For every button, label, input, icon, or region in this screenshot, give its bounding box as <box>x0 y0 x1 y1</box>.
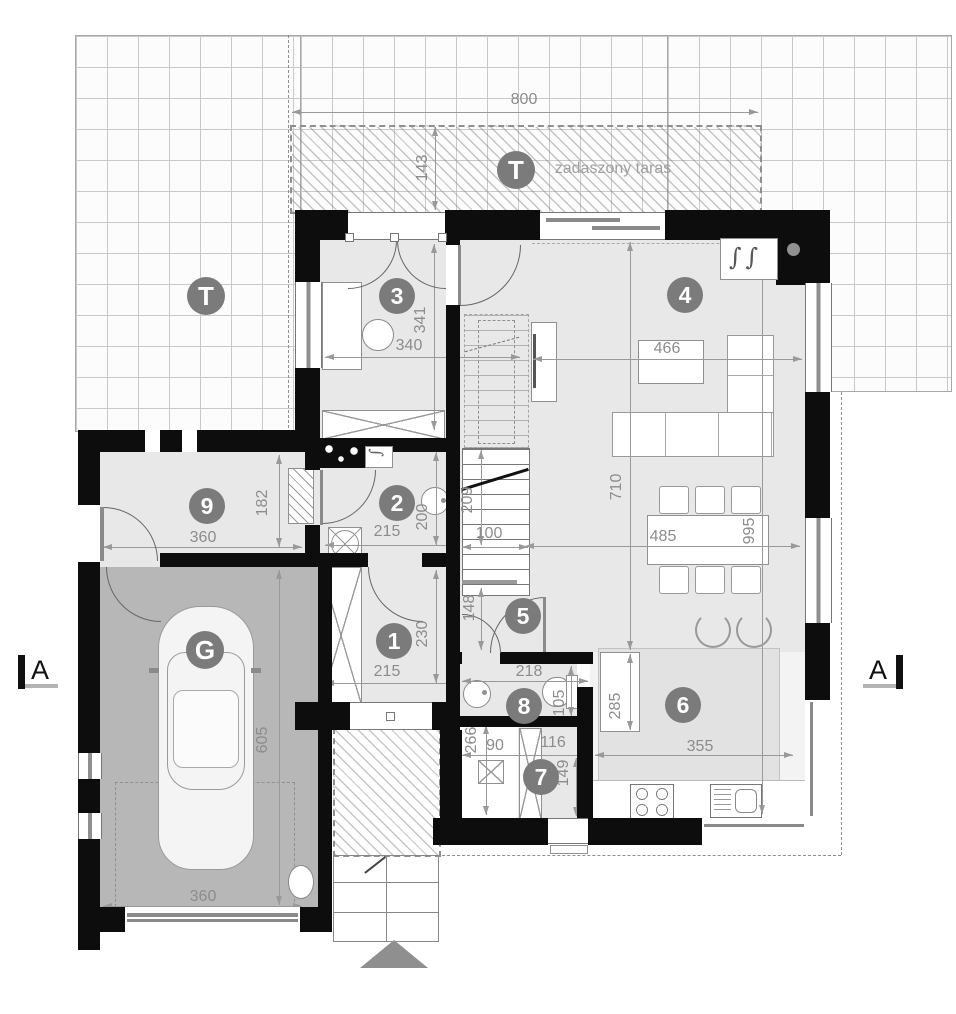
dining-chair <box>695 486 725 514</box>
dim-215-room2: 215 <box>374 523 401 541</box>
dim-209: 209 <box>459 487 477 514</box>
dim-line-710 <box>630 242 631 650</box>
closet-room9 <box>288 468 314 524</box>
section-bar-left <box>18 655 25 689</box>
room-circle-5: 5 <box>505 598 541 634</box>
terrace-left-tiles <box>75 35 303 432</box>
dim-485: 485 <box>650 528 677 546</box>
garage-window <box>78 813 102 839</box>
roof-overhang-bottom <box>437 855 841 856</box>
wall <box>295 368 320 438</box>
room-circle-8: 8 <box>506 688 542 724</box>
room-circle-4: 4 <box>667 277 703 313</box>
shower-drain <box>478 760 504 784</box>
dining-chair <box>659 486 689 514</box>
dim-line-200 <box>436 452 437 545</box>
wall <box>78 907 125 932</box>
door-post <box>386 712 395 721</box>
door-post <box>438 233 447 242</box>
garage-door-panel <box>127 913 298 917</box>
wc-sink <box>463 680 491 708</box>
wall <box>500 652 593 664</box>
wall <box>805 623 830 700</box>
wall <box>300 907 332 932</box>
dim-line-605 <box>279 570 280 905</box>
room2-door-leaf <box>320 470 323 525</box>
dim-105: 105 <box>551 690 569 717</box>
roof-overhang-right <box>841 392 842 855</box>
dim-line-215-room2 <box>325 545 456 546</box>
dim-line-143 <box>435 127 436 210</box>
garage-basin <box>288 865 314 899</box>
wall <box>446 652 462 664</box>
terrace-top-circle: T <box>497 151 535 189</box>
sink-basin <box>735 789 757 813</box>
garage-door-panel <box>127 919 298 922</box>
car-mirror <box>251 668 261 673</box>
dim-230: 230 <box>414 621 432 648</box>
dim-line-218 <box>462 681 588 682</box>
dim-605: 605 <box>254 727 272 754</box>
kitchen-counter <box>590 780 806 820</box>
window-living-east <box>805 283 832 392</box>
dim-215-room1: 215 <box>374 663 401 681</box>
wall <box>305 525 320 553</box>
wardrobe-room3 <box>322 410 445 440</box>
dim-line-90-116 <box>462 755 590 756</box>
entry-steps <box>333 855 439 942</box>
wall <box>588 818 702 845</box>
dim-200: 200 <box>414 504 432 531</box>
boiler: ∫ <box>365 446 393 468</box>
kitchen-sink <box>710 784 762 818</box>
entrance-door-opening <box>78 505 100 562</box>
dim-266: 266 <box>463 727 481 754</box>
entrance-arrow <box>360 940 428 968</box>
dim-355: 355 <box>687 738 714 756</box>
dim-line-230 <box>436 570 437 683</box>
dim-218: 218 <box>516 663 543 681</box>
car-roof <box>173 690 239 768</box>
entry-terrace-hatch <box>333 728 441 857</box>
wall <box>305 452 320 470</box>
boiler-icon: ∫ <box>368 448 387 456</box>
wall <box>665 210 830 240</box>
dim-800: 800 <box>511 91 538 109</box>
desk-chair <box>362 319 394 351</box>
dim-995: 995 <box>741 518 759 545</box>
room-circle-7: 7 <box>523 759 559 795</box>
wall <box>295 210 348 240</box>
dim-line-340 <box>325 357 520 358</box>
dim-341: 341 <box>412 307 430 334</box>
corner-glass-east <box>810 702 813 816</box>
vent-notch <box>145 430 160 452</box>
dim-line-995 <box>762 242 763 814</box>
dim-182: 182 <box>254 490 272 517</box>
dim-line-100 <box>462 547 528 548</box>
wall <box>577 687 593 818</box>
section-label-left: A <box>31 655 49 686</box>
wall <box>446 305 460 440</box>
dining-chair <box>731 486 761 514</box>
wall <box>160 553 318 567</box>
dining-chair <box>731 566 761 594</box>
door-post <box>345 233 354 242</box>
floor-plan: ∫∫ ∫ <box>0 0 956 1014</box>
sliding-pane <box>592 226 660 230</box>
fireplace-icon: ∫∫ <box>729 243 762 271</box>
wall <box>805 392 830 518</box>
room-circle-3: 3 <box>379 278 415 314</box>
wall <box>318 553 332 910</box>
garage-circle: G <box>186 631 224 669</box>
car-mirror <box>149 668 159 673</box>
dining-chair <box>659 566 689 594</box>
dim-line-285 <box>630 654 631 730</box>
entrance-door-leaf <box>100 507 104 561</box>
room-circle-1: 1 <box>376 623 412 659</box>
terrace-left-circle: T <box>187 277 225 315</box>
dim-710: 710 <box>608 474 626 501</box>
wall <box>295 702 350 730</box>
dim-143: 143 <box>414 155 432 182</box>
dim-285: 285 <box>607 693 625 720</box>
kitchenette-counter <box>320 442 365 468</box>
section-bar-right <box>896 655 903 689</box>
room-circle-6: 6 <box>665 687 701 723</box>
wall <box>440 730 462 820</box>
bar-stool <box>695 612 731 648</box>
room-circle-2: 2 <box>379 485 415 521</box>
step-line <box>386 856 387 941</box>
dim-line-485 <box>525 546 800 547</box>
wall <box>805 240 830 283</box>
dim-340: 340 <box>396 337 423 355</box>
dim-line-105 <box>571 666 572 716</box>
room-circle-9: 9 <box>189 488 225 524</box>
dim-line-182 <box>279 455 280 547</box>
corner-window-south <box>702 818 806 845</box>
vent-notch <box>182 430 197 452</box>
wall <box>446 716 518 727</box>
wall <box>433 818 548 845</box>
window-room3-west <box>295 282 322 368</box>
wc-sink-drain <box>482 690 487 695</box>
wall <box>445 210 540 240</box>
corner-glass-south <box>704 824 804 827</box>
wall <box>422 553 460 567</box>
dim-line-215-room1 <box>325 683 456 684</box>
corner-window-east <box>805 700 830 818</box>
section-label-right: A <box>869 655 887 686</box>
bar-stool <box>736 612 772 648</box>
wall <box>446 567 460 702</box>
step-line <box>334 882 438 883</box>
dim-360-hall: 360 <box>190 529 217 547</box>
dim-466: 466 <box>654 340 681 358</box>
sliding-pane <box>546 218 620 222</box>
door-post <box>390 233 399 242</box>
chimney-dot <box>787 243 800 256</box>
garage-window <box>78 753 102 779</box>
dim-116: 116 <box>540 734 566 752</box>
roof-overhang-left <box>288 35 289 428</box>
hall-door-leaf <box>543 597 546 652</box>
wall <box>295 240 320 282</box>
dim-line-800 <box>292 112 758 113</box>
room3-door-leaf <box>458 245 461 305</box>
drainboard <box>714 789 731 812</box>
stove <box>630 784 674 820</box>
step-arrow <box>364 856 385 873</box>
dim-100: 100 <box>476 525 503 543</box>
hall-partition-cap <box>462 580 517 584</box>
dim-90: 90 <box>486 737 504 755</box>
back-door <box>548 818 588 844</box>
back-door-threshold <box>550 845 588 854</box>
wall <box>446 440 460 553</box>
sofa-horizontal <box>612 412 774 457</box>
covered-terrace-label: zadaszony taras <box>555 160 672 178</box>
dining-chair <box>695 566 725 594</box>
step-line <box>334 912 438 913</box>
dim-360-garage: 360 <box>190 888 217 906</box>
dim-148: 148 <box>461 595 479 622</box>
window-dining-east <box>805 518 832 623</box>
utility-sink-drain <box>441 498 446 503</box>
